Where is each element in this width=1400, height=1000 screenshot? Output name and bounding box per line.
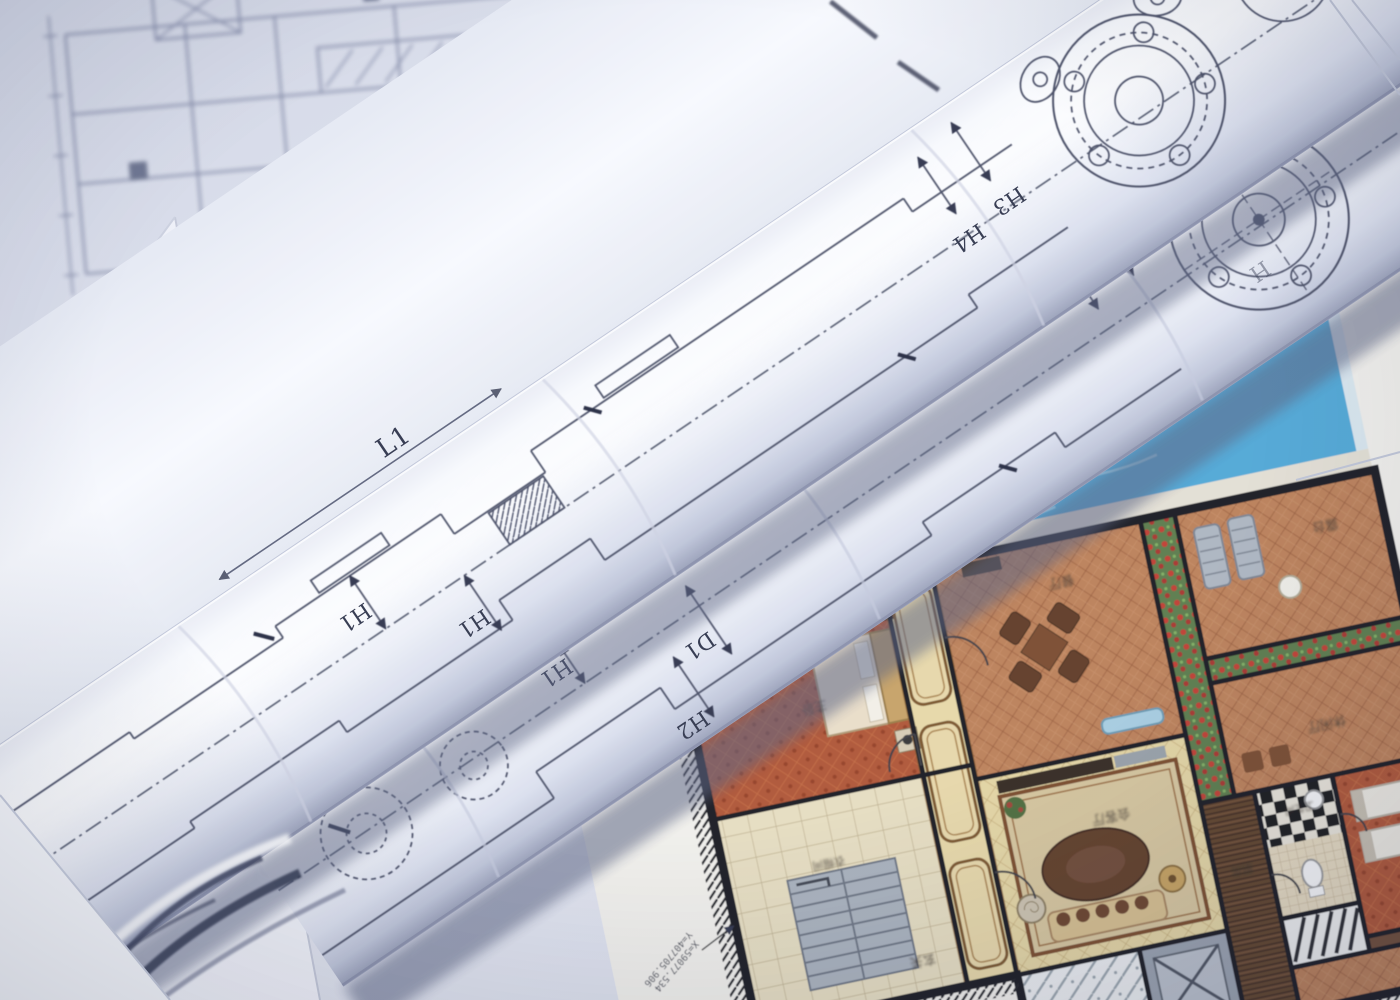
blueprint-photo: 立面图 二层平面图 <box>0 0 1400 1000</box>
vignette <box>0 0 1400 1000</box>
photo-stage: 立面图 二层平面图 <box>0 0 1400 1000</box>
